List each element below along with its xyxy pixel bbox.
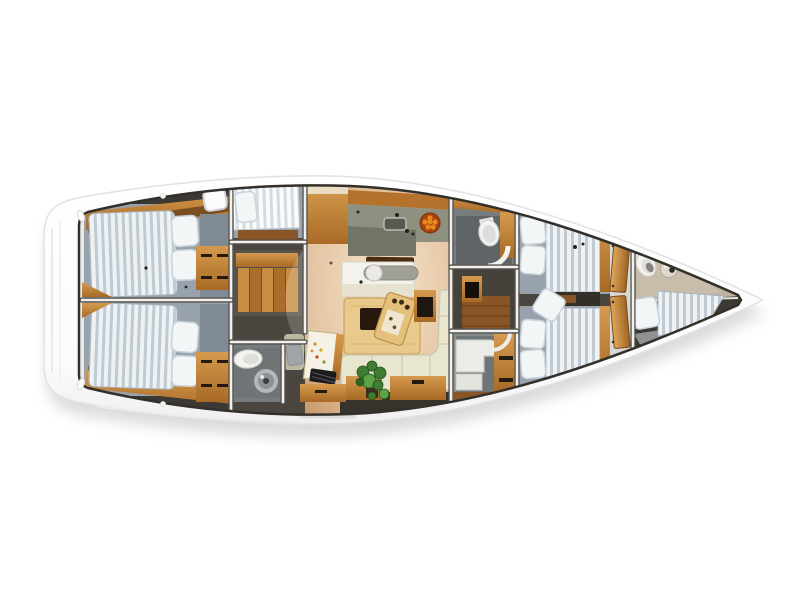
- pillow: [171, 250, 198, 281]
- interior-rooms: [79, 182, 740, 414]
- fitting-speck: [144, 266, 147, 269]
- counter-item: [412, 233, 415, 236]
- sofa-side-cabinet-opening: [417, 297, 433, 317]
- drawer-handle: [315, 390, 327, 393]
- toilet-lid: [243, 354, 259, 365]
- wardrobe-front: [600, 212, 611, 292]
- cabinet-opening: [465, 282, 479, 298]
- vanity-shelf: [456, 374, 482, 390]
- pillow: [520, 349, 546, 379]
- fitting-speck: [185, 286, 188, 289]
- basin-glint: [260, 375, 264, 379]
- pillow: [520, 319, 546, 349]
- bar-disc: [366, 265, 382, 281]
- stair-landing: [236, 253, 298, 267]
- double-berth-mattress: [89, 211, 178, 298]
- galley-cabinet-left: [307, 186, 348, 244]
- counter-item: [405, 229, 409, 233]
- pillow: [171, 215, 199, 247]
- sideboard-speck: [359, 280, 362, 283]
- berth-item: [573, 245, 577, 249]
- pillow: [234, 191, 257, 223]
- drawer-handle: [201, 276, 212, 279]
- drawer-slot: [499, 356, 513, 360]
- sideboard-lower: [342, 284, 414, 296]
- stair-tread: [238, 268, 249, 312]
- stair-tread: [262, 268, 273, 312]
- sink: [384, 218, 406, 230]
- drawer-handle: [217, 276, 228, 279]
- basin-drain: [263, 378, 269, 384]
- drawer-handle: [217, 254, 228, 257]
- yacht-floorplan-image: [0, 0, 800, 600]
- pillow: [171, 356, 198, 387]
- seat-cushion: [286, 344, 304, 366]
- berth-item: [582, 243, 585, 246]
- storage-drawers: [196, 352, 230, 402]
- faucet: [395, 213, 399, 217]
- bow-head: [631, 222, 740, 303]
- drawer-slot: [499, 378, 513, 382]
- pillow: [520, 245, 546, 275]
- door-hinge: [612, 285, 615, 288]
- drawer-handle: [201, 384, 212, 387]
- door-hinge: [612, 301, 615, 304]
- deck-fitting: [161, 194, 166, 199]
- stair-tread: [274, 268, 285, 312]
- drawer-slot: [412, 380, 424, 384]
- pillow: [171, 321, 199, 353]
- drawer-handle: [217, 384, 228, 387]
- drawer-handle: [201, 254, 212, 257]
- floorplan-svg: [0, 0, 800, 600]
- storage-drawers: [196, 246, 230, 290]
- door-hinge: [612, 341, 615, 344]
- drawer-handle: [217, 360, 228, 363]
- galley-cabinet-left-top: [307, 186, 348, 194]
- drawer-handle: [201, 360, 212, 363]
- stair-tread: [250, 268, 261, 312]
- sofa-base-drawer: [390, 376, 446, 400]
- counter-item: [357, 211, 360, 214]
- double-berth-mattress: [89, 303, 178, 390]
- aft-head: [231, 344, 283, 402]
- floor-speck: [330, 262, 333, 265]
- deck-fitting: [161, 402, 166, 407]
